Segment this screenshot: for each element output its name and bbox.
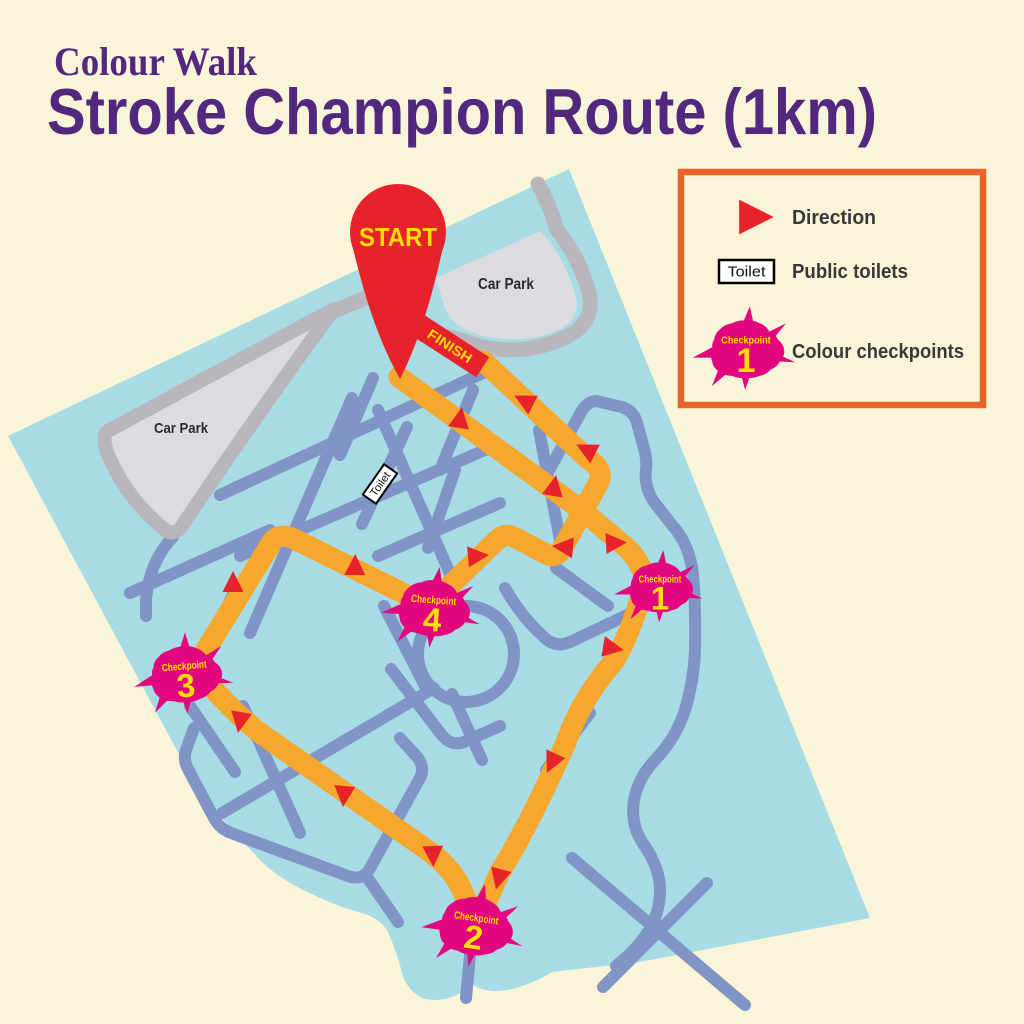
svg-text:START: START (359, 222, 437, 252)
svg-text:Stroke Champion Route (1km): Stroke Champion Route (1km) (47, 75, 877, 148)
svg-text:Colour checkpoints: Colour checkpoints (792, 341, 964, 363)
svg-text:Toilet: Toilet (728, 264, 767, 281)
svg-text:Direction: Direction (792, 207, 876, 229)
svg-text:1: 1 (736, 342, 755, 380)
svg-text:4: 4 (422, 601, 444, 639)
svg-text:Public toilets: Public toilets (792, 261, 908, 283)
svg-text:3: 3 (175, 667, 197, 705)
svg-text:Car Park: Car Park (154, 420, 209, 437)
svg-text:Car Park: Car Park (478, 276, 534, 293)
svg-text:1: 1 (651, 579, 669, 616)
